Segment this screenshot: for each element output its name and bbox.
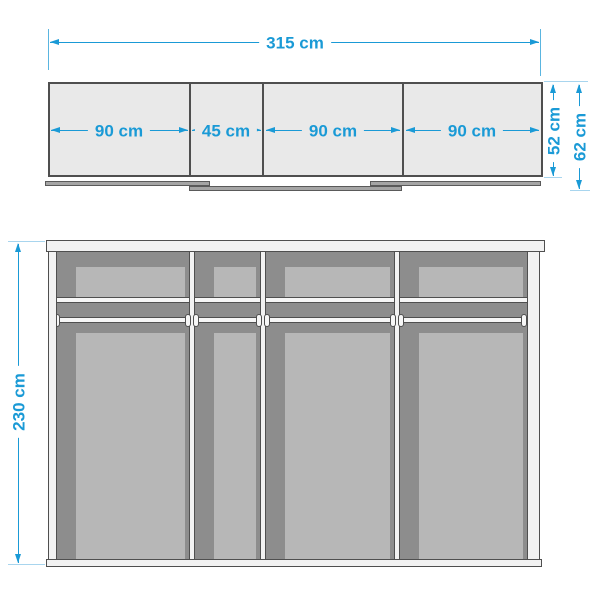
- compartment3-hanging-rail: [268, 317, 392, 323]
- arrow-down-icon: [15, 554, 21, 563]
- rail-end-cap: [264, 314, 270, 327]
- rail-end-cap: [193, 314, 199, 327]
- section4-dimension-label: 90 cm: [441, 121, 503, 142]
- arrow-left-icon: [51, 127, 60, 133]
- top-view-door-separator-2: [262, 84, 264, 175]
- total-width-dimension-label: 315 cm: [259, 33, 331, 54]
- front-view-top-panel: [46, 240, 545, 252]
- rail-end-cap: [256, 314, 262, 327]
- arrow-up-icon: [576, 84, 582, 93]
- compartment1-hanging-rail: [59, 317, 187, 323]
- arrow-down-icon: [576, 180, 582, 189]
- section2-dimension-label: 45 cm: [195, 121, 257, 142]
- section1-dimension-label: 90 cm: [88, 121, 150, 142]
- compartment3-lower-back-panel: [285, 333, 390, 559]
- rail-end-cap: [185, 314, 191, 327]
- door-track-upper-left: [45, 181, 210, 186]
- inner-depth-extension-tick-bottom: [544, 177, 562, 178]
- arrow-up-icon: [550, 84, 556, 93]
- compartment1-shelf: [57, 297, 189, 303]
- compartment4-hanging-rail: [402, 317, 525, 323]
- arrow-down-icon: [550, 167, 556, 176]
- front-view-divider-1: [189, 252, 195, 559]
- compartment4-upper-back-panel: [419, 267, 523, 298]
- height-extension-tick-top: [8, 241, 45, 242]
- total-width-extension-line-left: [48, 29, 49, 70]
- arrow-right-icon: [391, 127, 400, 133]
- height-dimension-label: 230 cm: [9, 366, 30, 438]
- compartment1-upper-back-panel: [76, 267, 185, 298]
- arrow-up-icon: [15, 243, 21, 252]
- arrow-left-icon: [266, 127, 275, 133]
- height-extension-tick-bottom: [8, 564, 45, 565]
- rail-end-cap: [390, 314, 396, 327]
- compartment1-lower-back-panel: [76, 333, 185, 559]
- arrow-right-icon: [530, 127, 539, 133]
- arrow-left-icon: [406, 127, 415, 133]
- arrow-right-icon: [179, 127, 188, 133]
- door-track-lower-middle: [189, 186, 402, 191]
- compartment3-upper-back-panel: [285, 267, 390, 298]
- front-view-divider-2: [260, 252, 266, 559]
- compartment4-shelf: [400, 297, 527, 303]
- top-view-door-separator-1: [189, 84, 191, 175]
- compartment4-lower-back-panel: [419, 333, 523, 559]
- section3-dimension-label: 90 cm: [302, 121, 364, 142]
- arrow-right-icon: [530, 39, 539, 45]
- depth-extension-tick-top: [544, 81, 588, 82]
- outer-depth-extension-tick-bottom: [570, 190, 590, 191]
- compartment2-hanging-rail: [197, 317, 258, 323]
- compartment2-shelf: [195, 297, 260, 303]
- front-view-base-panel: [46, 559, 542, 567]
- total-width-extension-line-right: [540, 29, 541, 76]
- front-view-right-wall: [527, 252, 540, 559]
- front-view-left-wall: [48, 252, 57, 559]
- wardrobe-dimension-diagram: 315 cm 90 cm 45 cm 90 cm 90 cm 52 cm 62 …: [0, 0, 600, 600]
- arrow-left-icon: [50, 39, 59, 45]
- compartment2-upper-back-panel: [214, 267, 256, 298]
- inner-depth-dimension-label: 52 cm: [544, 100, 565, 162]
- rail-end-cap: [398, 314, 404, 327]
- compartment3-shelf: [266, 297, 394, 303]
- compartment2-lower-back-panel: [214, 333, 256, 559]
- top-view-door-separator-3: [402, 84, 404, 175]
- front-view-divider-3: [394, 252, 400, 559]
- outer-depth-dimension-label: 62 cm: [570, 106, 591, 168]
